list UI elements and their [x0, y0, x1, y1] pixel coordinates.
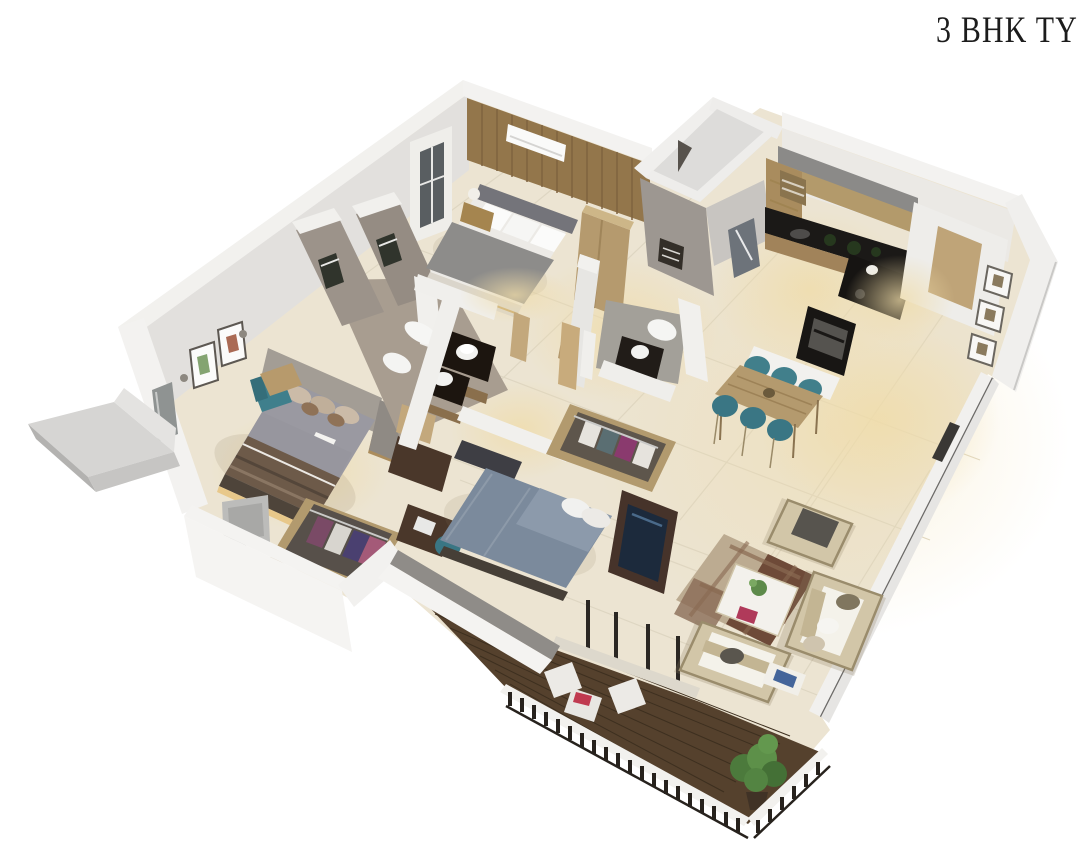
- svg-text:3 BHK TY: 3 BHK TY: [936, 10, 1078, 51]
